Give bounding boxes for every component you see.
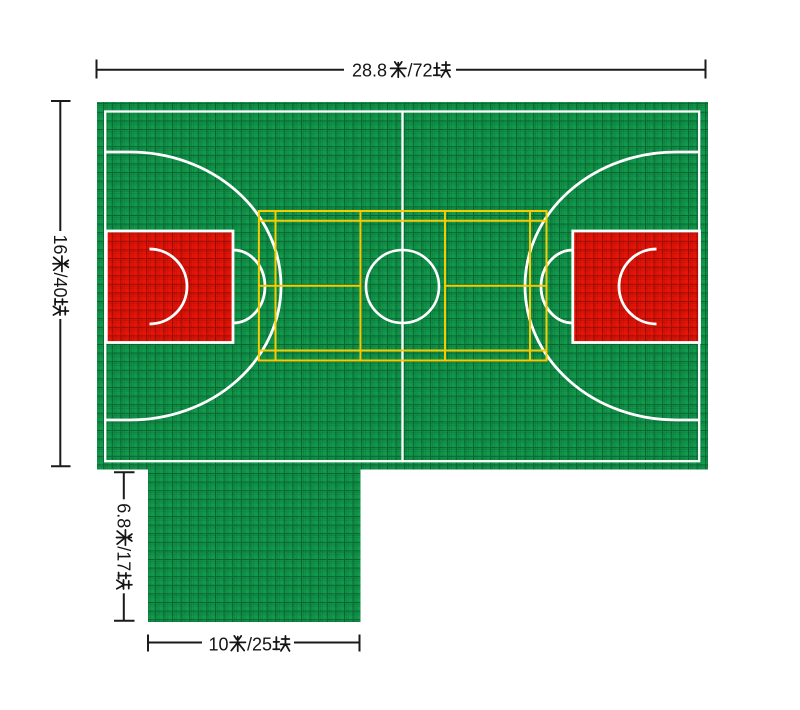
svg-text:/72: /72 bbox=[408, 61, 433, 81]
svg-text:/17: /17 bbox=[113, 546, 133, 571]
svg-text:28.8: 28.8 bbox=[352, 61, 387, 81]
svg-text:6.8: 6.8 bbox=[113, 503, 133, 528]
svg-text:/25: /25 bbox=[247, 635, 272, 655]
svg-text:/40: /40 bbox=[50, 273, 70, 298]
svg-text:16: 16 bbox=[50, 235, 70, 255]
svg-text:10: 10 bbox=[209, 635, 229, 655]
